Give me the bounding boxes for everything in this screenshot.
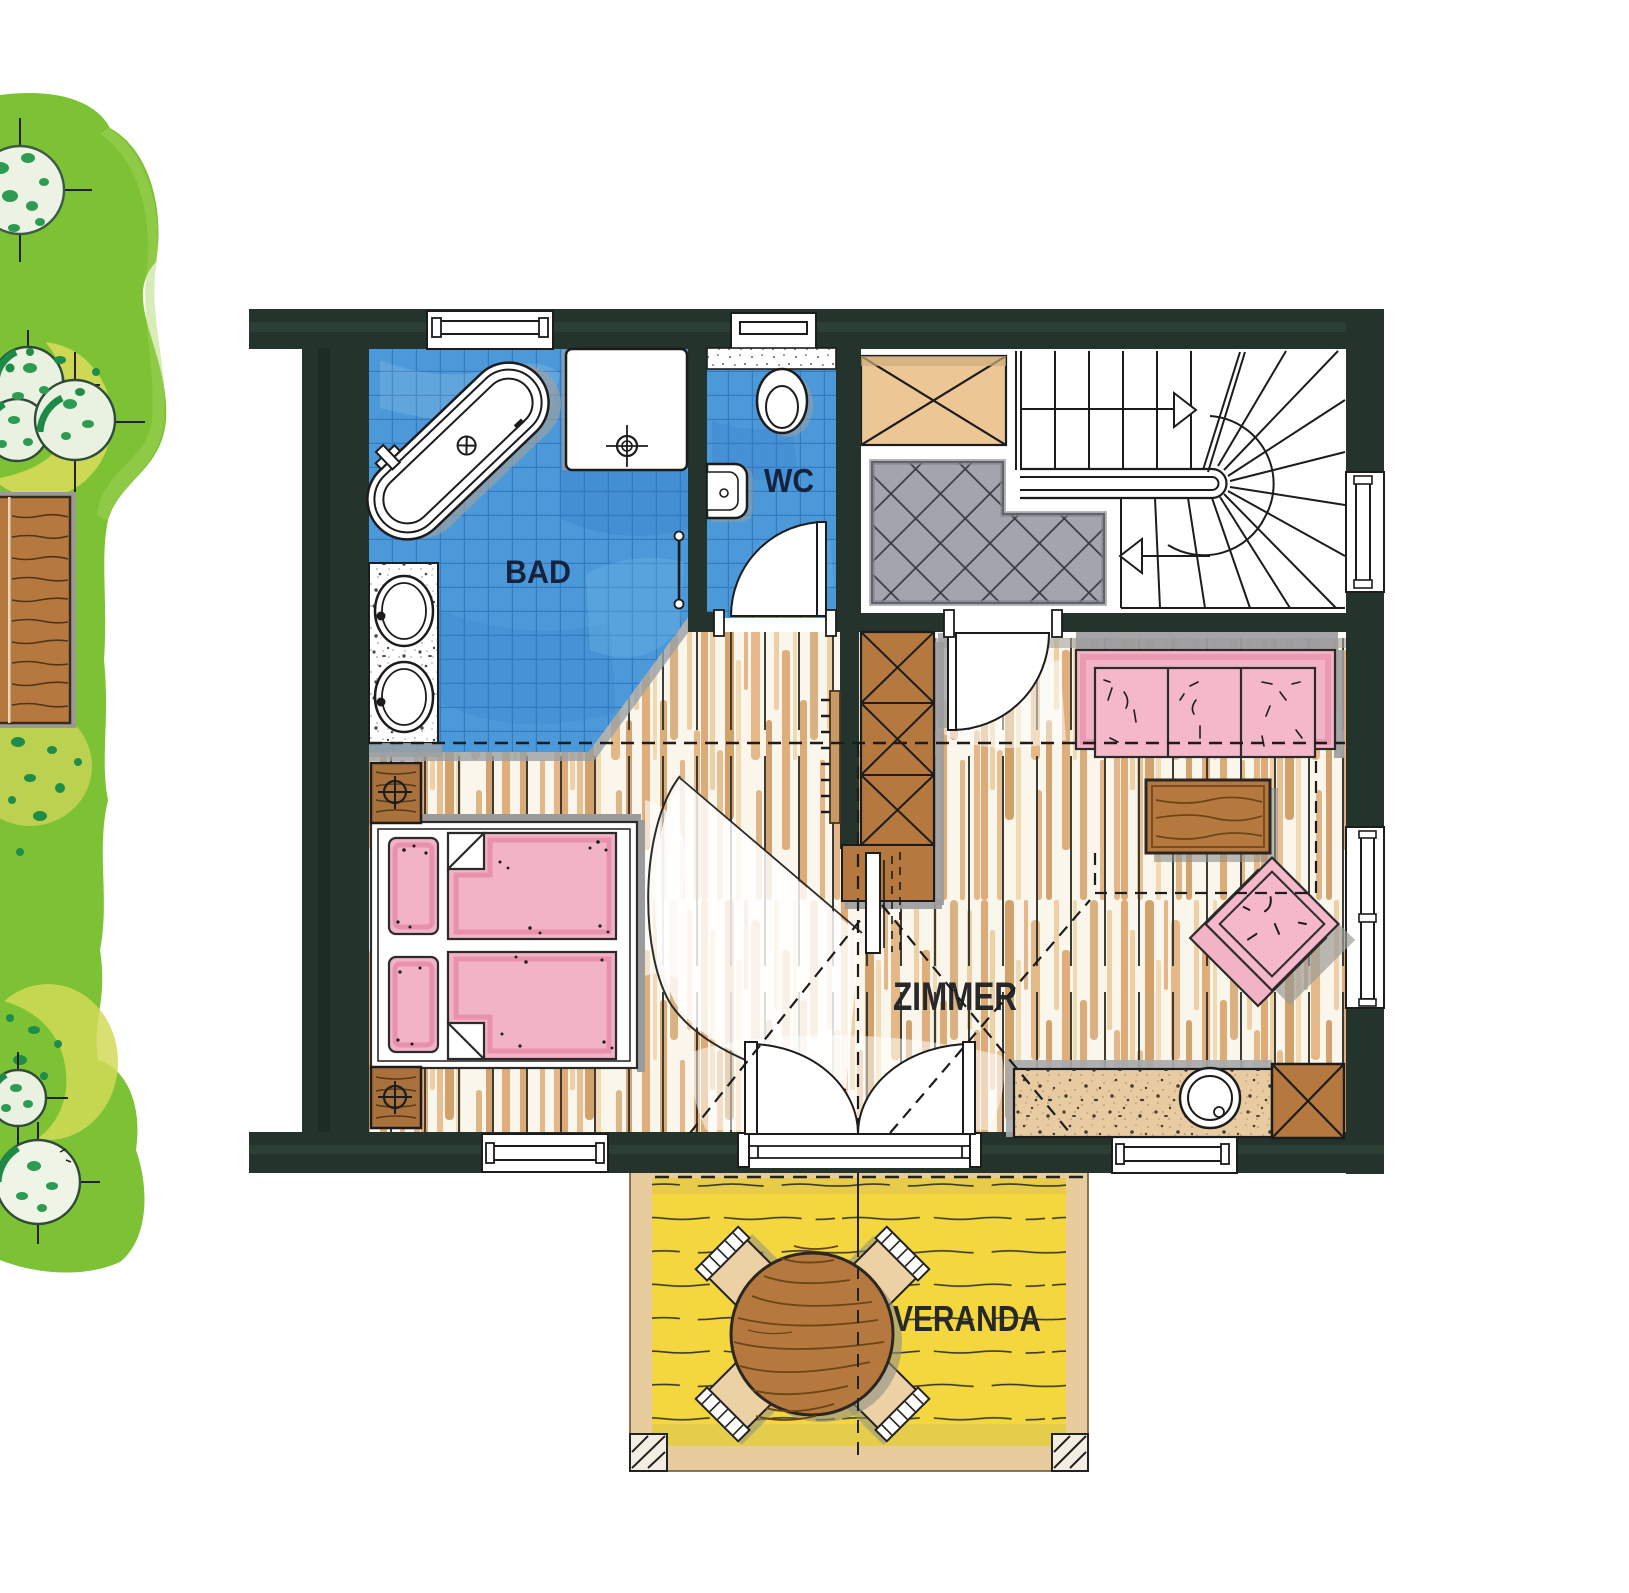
svg-text:VERANDA: VERANDA <box>893 1298 1041 1339</box>
svg-text:WC: WC <box>764 462 814 499</box>
svg-text:ZIMMER: ZIMMER <box>893 975 1017 1019</box>
svg-text:BAD: BAD <box>505 554 571 590</box>
